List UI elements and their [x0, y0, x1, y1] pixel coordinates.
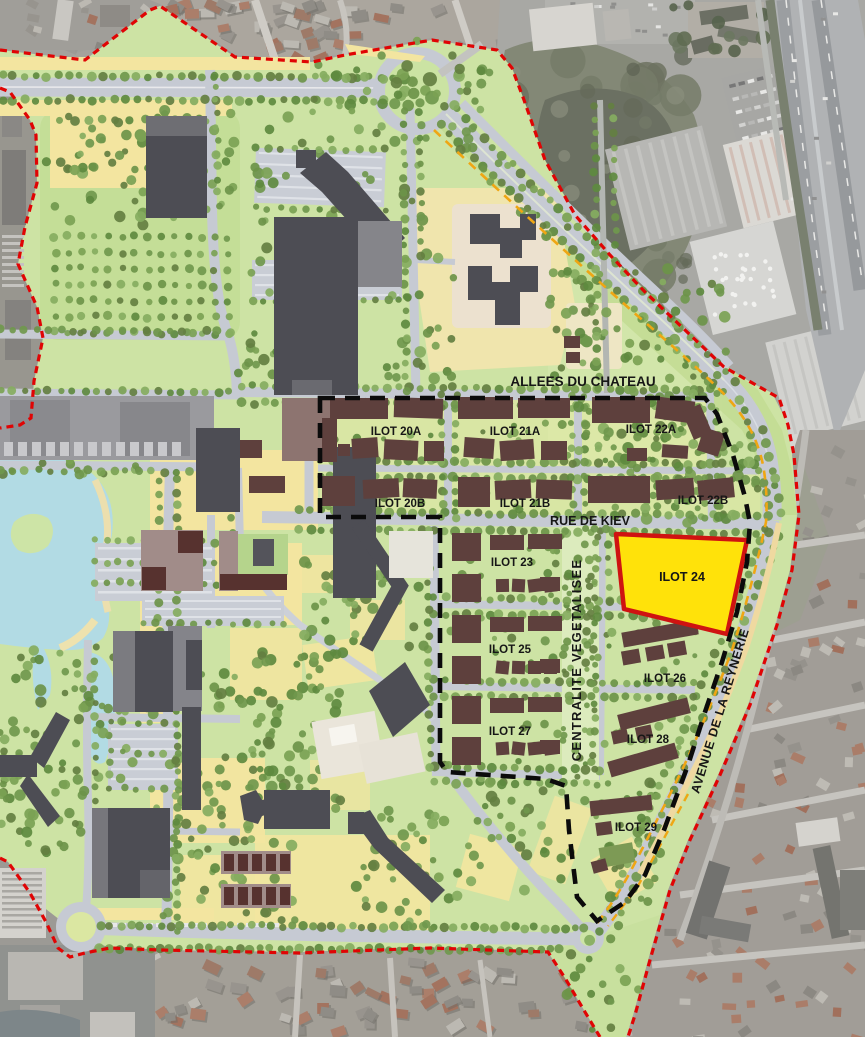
- svg-text:ILOT 20A: ILOT 20A: [371, 426, 421, 438]
- svg-text:ILOT 22A: ILOT 22A: [626, 424, 676, 436]
- svg-text:ILOT 21B: ILOT 21B: [500, 498, 550, 510]
- svg-text:RUE DE KIEV: RUE DE KIEV: [550, 514, 631, 528]
- svg-text:ILOT 22B: ILOT 22B: [678, 495, 728, 507]
- svg-text:ILOT 20B: ILOT 20B: [375, 498, 425, 510]
- svg-text:ILOT 26: ILOT 26: [644, 673, 686, 685]
- svg-text:ALLEES DU CHATEAU: ALLEES DU CHATEAU: [510, 374, 655, 389]
- svg-text:ILOT 24: ILOT 24: [659, 570, 705, 584]
- svg-text:ILOT 25: ILOT 25: [489, 644, 532, 656]
- svg-text:ILOT 28: ILOT 28: [627, 734, 670, 746]
- svg-text:ILOT 23: ILOT 23: [491, 557, 533, 569]
- svg-text:ILOT 29: ILOT 29: [615, 822, 657, 834]
- svg-text:ILOT 21A: ILOT 21A: [490, 426, 540, 438]
- svg-text:ILOT 27: ILOT 27: [489, 726, 531, 738]
- svg-text:CENTRALITE VEGETALISEE: CENTRALITE VEGETALISEE: [569, 559, 584, 761]
